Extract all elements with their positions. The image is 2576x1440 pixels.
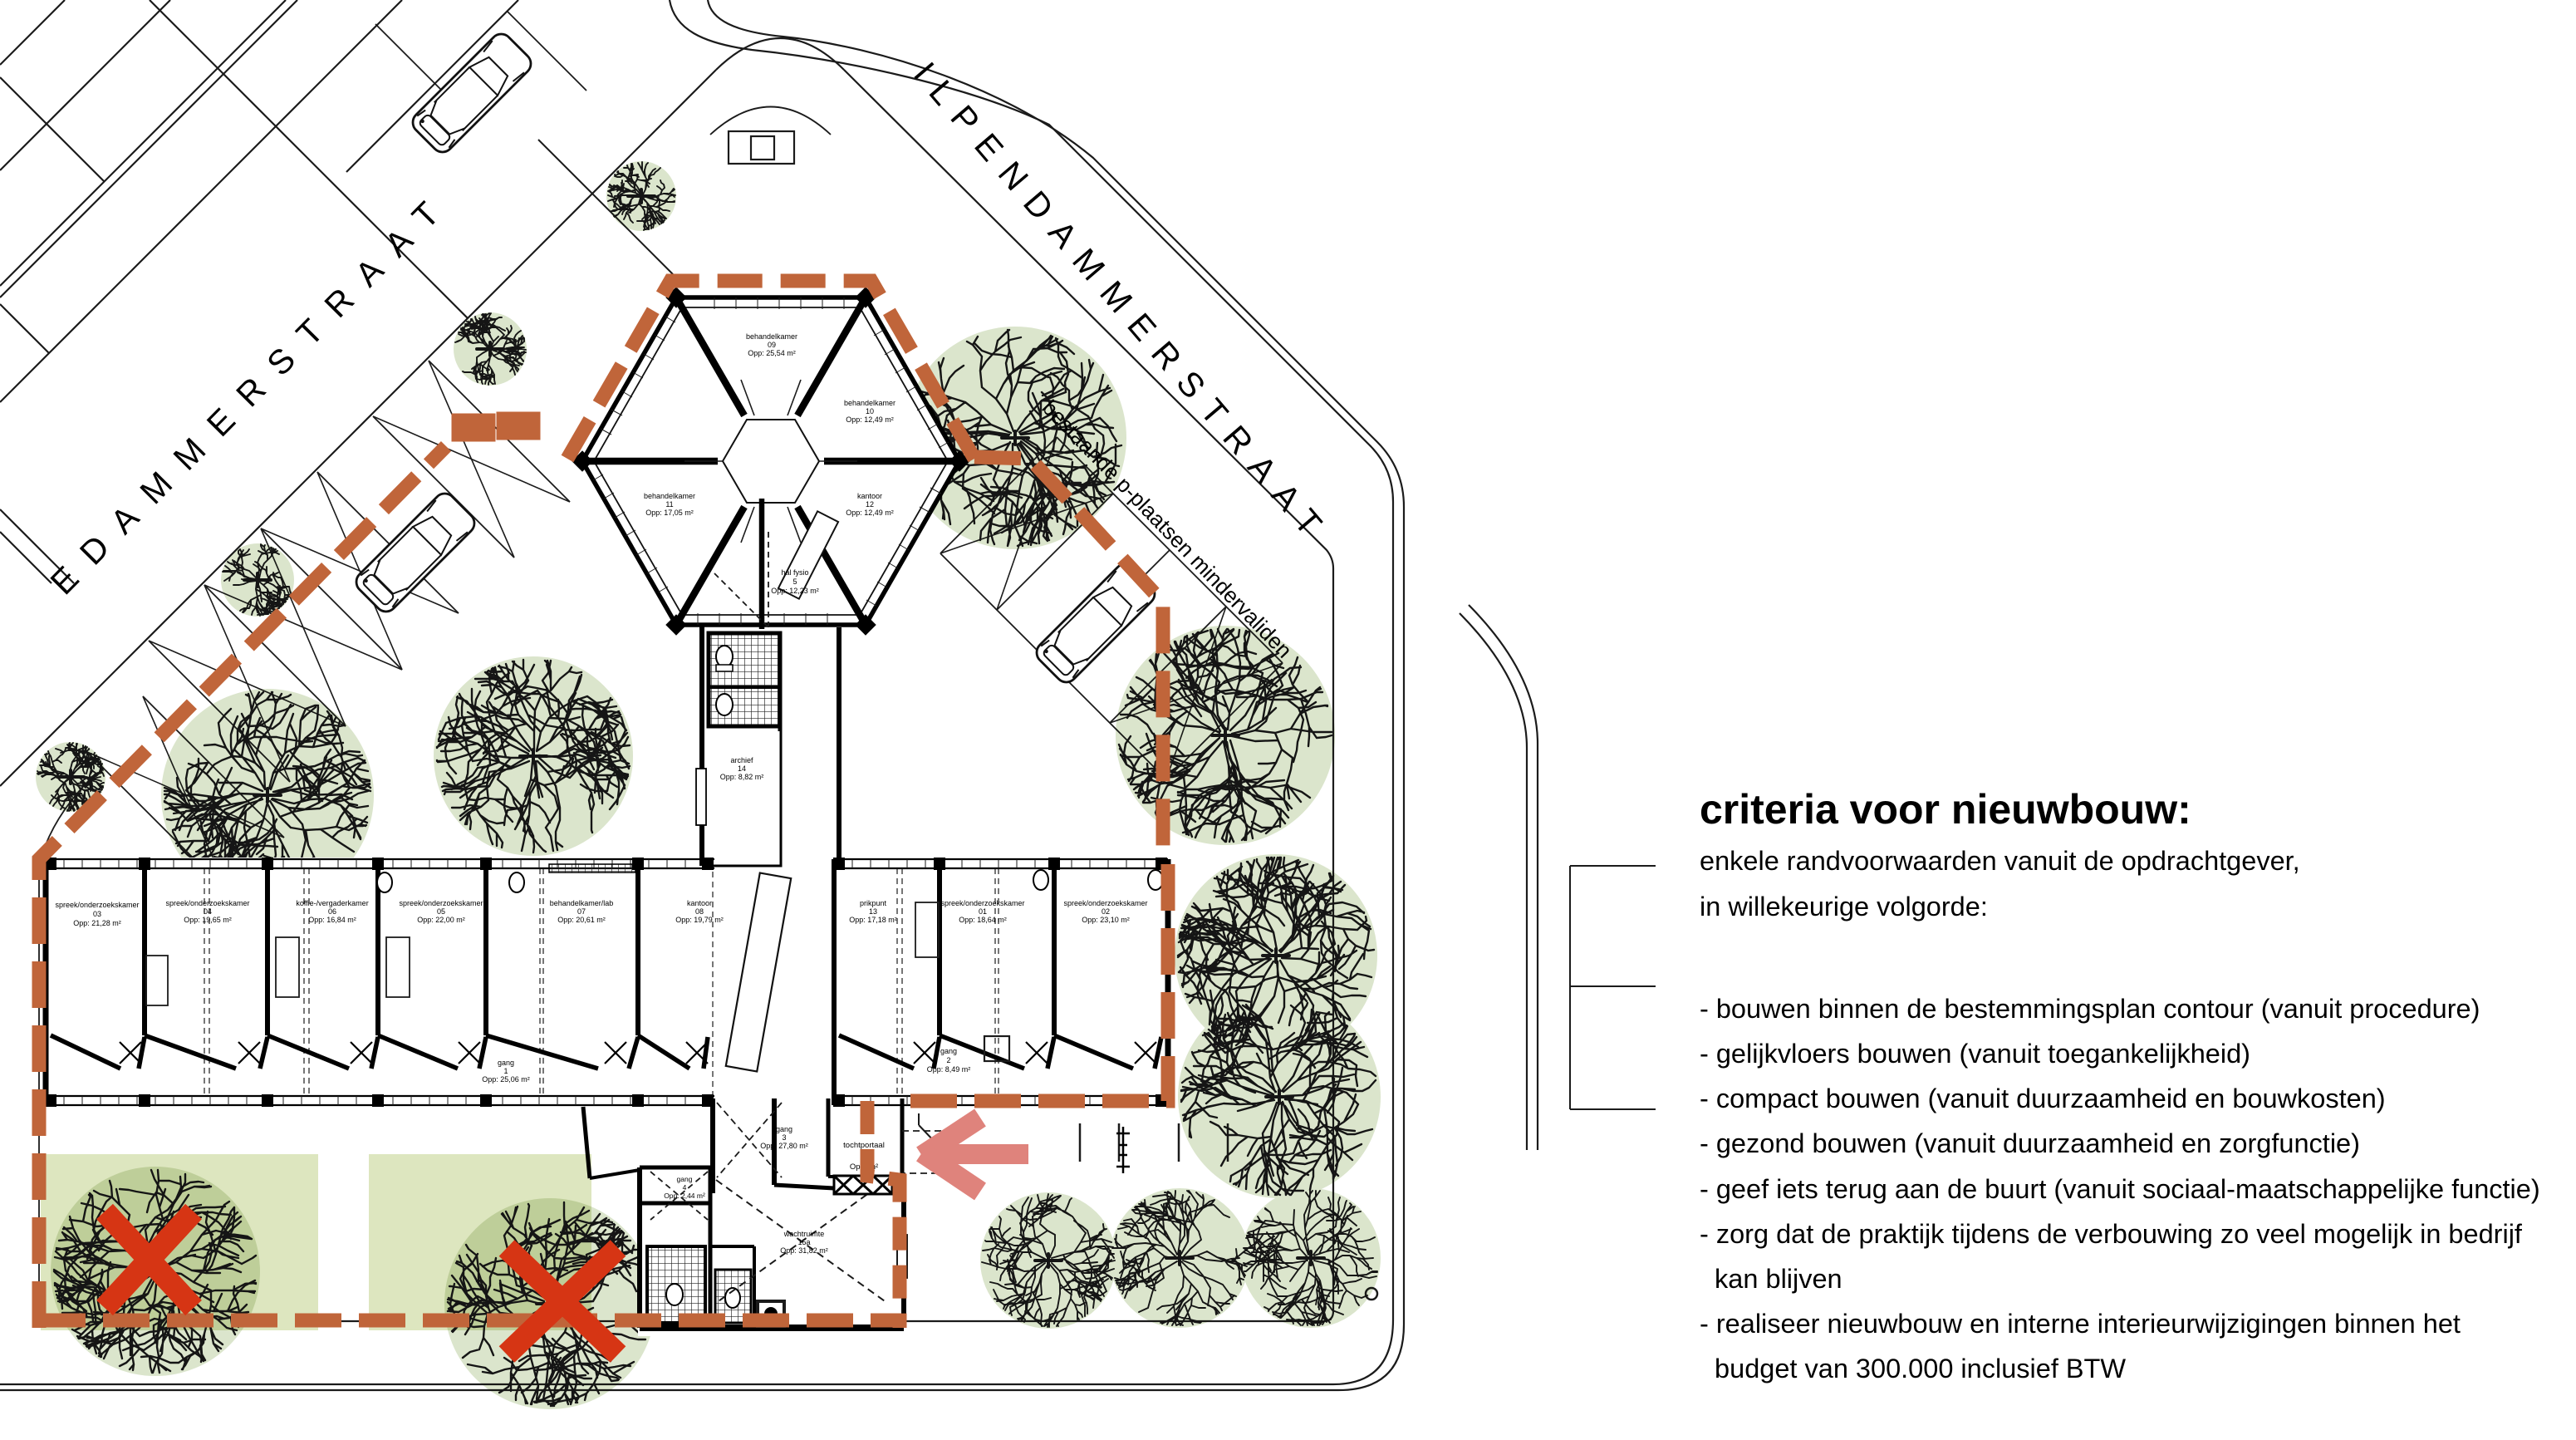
svg-text:budget van 300.000 inclusief B: budget van 300.000 inclusief BTW [1700,1354,2126,1383]
svg-text:Opp: 12,49 m²: Opp: 12,49 m² [846,415,894,424]
svg-text:- realiseer nieuwbouw en inter: - realiseer nieuwbouw en interne interie… [1700,1309,2461,1339]
svg-text:12: 12 [866,500,874,509]
svg-text:Opp: 25,06 m²: Opp: 25,06 m² [482,1075,530,1084]
svg-text:criteria voor nieuwbouw:: criteria voor nieuwbouw: [1700,786,2191,833]
svg-text:02: 02 [1102,907,1110,916]
svg-text:gang: gang [776,1125,792,1133]
svg-text:koffie-/vergaderkamer: koffie-/vergaderkamer [296,899,368,907]
svg-text:05: 05 [437,907,445,916]
svg-text:- geef iets terug aan de buurt: - geef iets terug aan de buurt (vanuit s… [1700,1174,2540,1204]
svg-text:- gezond bouwen (vanuit duurza: - gezond bouwen (vanuit duurzaamheid en … [1700,1128,2360,1158]
svg-text:behandelkamer: behandelkamer [746,332,797,341]
svg-text:gang: gang [677,1175,693,1183]
svg-text:13: 13 [869,907,877,916]
svg-text:behandelkamer: behandelkamer [844,399,895,407]
svg-text:07: 07 [577,907,586,916]
svg-text:Opp: 27,80 m²: Opp: 27,80 m² [760,1142,808,1150]
svg-text:gang: gang [940,1047,957,1055]
svg-text:tochtportaal: tochtportaal [843,1141,885,1150]
svg-text:Opp: 23,10 m²: Opp: 23,10 m² [1082,916,1130,924]
svg-text:prikpunt: prikpunt [860,899,887,907]
svg-text:14: 14 [738,764,746,773]
svg-text:08: 08 [695,907,704,916]
svg-text:spreek/onderzoekskamer: spreek/onderzoekskamer [165,899,249,907]
svg-text:spreek/onderzoekskamer: spreek/onderzoekskamer [940,899,1024,907]
svg-text:Opp: 21,28 m²: Opp: 21,28 m² [73,919,121,927]
svg-text:Opp: 20,61 m²: Opp: 20,61 m² [557,916,606,924]
svg-text:- zorg dat de praktijk tijdens: - zorg dat de praktijk tijdens de verbou… [1700,1219,2523,1249]
svg-text:hal fysio: hal fysio [781,568,808,577]
svg-text:wachtruimte: wachtruimte [783,1230,825,1238]
svg-text:11: 11 [665,500,673,509]
svg-text:in willekeurige volgorde:: in willekeurige volgorde: [1700,892,1988,922]
svg-text:spreek/onderzoekskamer: spreek/onderzoekskamer [1063,899,1147,907]
svg-text:Opp: 22,00 m²: Opp: 22,00 m² [417,916,465,924]
svg-text:5: 5 [792,577,797,586]
svg-text:Opp: 17,05 m²: Opp: 17,05 m² [645,509,694,517]
svg-text:Opp: 12,23 m²: Opp: 12,23 m² [771,587,819,595]
svg-text:Opp: 2,44 m²: Opp: 2,44 m² [664,1192,705,1200]
svg-text:enkele randvoorwaarden vanuit: enkele randvoorwaarden vanuit de opdrach… [1700,846,2300,876]
svg-text:kan blijven: kan blijven [1700,1264,1842,1294]
svg-text:behandelkamer/lab: behandelkamer/lab [550,899,614,907]
svg-text:kantoor: kantoor [687,899,712,907]
svg-text:gang: gang [498,1059,514,1067]
svg-text:- gelijkvloers bouwen (vanuit: - gelijkvloers bouwen (vanuit toegankeli… [1700,1039,2250,1069]
svg-text:- bouwen binnen de bestemmings: - bouwen binnen de bestemmingsplan conto… [1700,994,2480,1024]
svg-text:01: 01 [979,907,987,916]
svg-text:10: 10 [866,407,874,415]
svg-text:Opp: 17,18 m²: Opp: 17,18 m² [849,916,897,924]
svg-text:15a: 15a [797,1238,810,1246]
svg-text:Opp: 8,49 m²: Opp: 8,49 m² [927,1065,971,1074]
svg-text:spreek/onderzoekskamer: spreek/onderzoekskamer [55,901,139,909]
svg-text:09: 09 [768,341,776,349]
svg-text:archief: archief [730,756,753,764]
svg-text:behandelkamer: behandelkamer [644,492,695,500]
svg-text:Opp: 19,65 m²: Opp: 19,65 m² [184,916,232,924]
svg-text:03: 03 [93,910,101,918]
svg-text:06: 06 [328,907,336,916]
svg-text:4: 4 [683,1183,687,1192]
svg-text:Opp: 25,54 m²: Opp: 25,54 m² [748,349,796,357]
svg-text:Opp: 16,84 m²: Opp: 16,84 m² [308,916,356,924]
svg-text:2: 2 [946,1056,950,1064]
svg-text:Opp: 18,64 m²: Opp: 18,64 m² [959,916,1007,924]
svg-text:3: 3 [782,1133,786,1142]
svg-text:Opp: 8,82 m²: Opp: 8,82 m² [720,773,764,781]
svg-text:spreek/onderzoekskamer: spreek/onderzoekskamer [399,899,483,907]
svg-text:Opp: 19,79 m²: Opp: 19,79 m² [675,916,724,924]
svg-text:1: 1 [503,1067,508,1075]
svg-text:04: 04 [204,907,212,916]
svg-text:- compact bouwen (vanuit duurz: - compact bouwen (vanuit duurzaamheid en… [1700,1084,2386,1113]
svg-text:Opp: 31,82 m²: Opp: 31,82 m² [780,1246,828,1255]
svg-text:kantoor: kantoor [857,492,882,500]
svg-text:Opp: 12,49 m²: Opp: 12,49 m² [846,509,894,517]
